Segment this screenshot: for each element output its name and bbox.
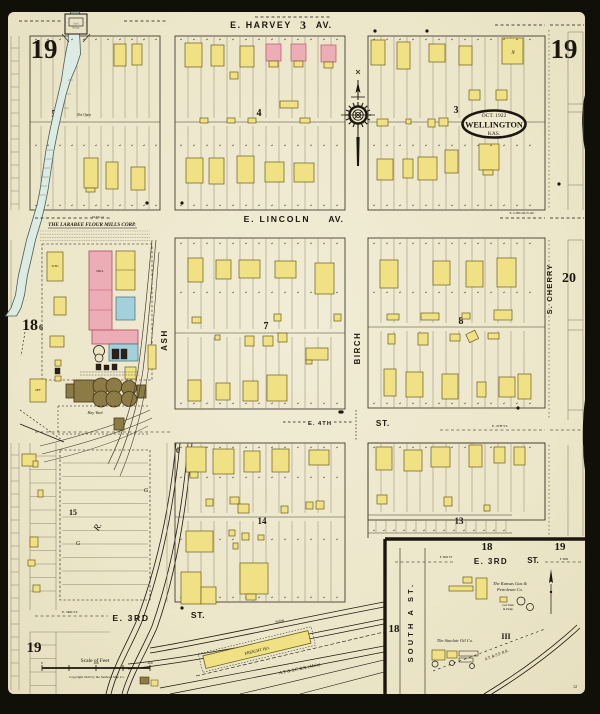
svg-text:E 3RD ST: E 3RD ST	[440, 555, 453, 559]
svg-text:20: 20	[562, 271, 576, 286]
svg-text:AV.: AV.	[316, 20, 332, 30]
svg-text:E. 4TH ST.: E. 4TH ST.	[492, 424, 508, 428]
svg-text:E. HARVEY: E. HARVEY	[230, 20, 292, 30]
svg-text:6: 6	[39, 323, 43, 332]
svg-text:The Sinclair Oil Co.: The Sinclair Oil Co.	[437, 638, 474, 643]
svg-text:19: 19	[27, 640, 42, 656]
svg-text:Not Open: Not Open	[76, 113, 91, 117]
svg-text:18: 18	[22, 317, 38, 334]
svg-text:KAS.: KAS.	[488, 131, 500, 137]
svg-text:7: 7	[264, 321, 269, 332]
svg-text:SOUTH A ST.: SOUTH A ST.	[406, 582, 415, 663]
svg-text:S. CHERRY: S. CHERRY	[545, 264, 554, 315]
svg-text:12: 12	[573, 684, 577, 689]
svg-text:Bridge: Bridge	[72, 26, 80, 29]
svg-text:19: 19	[551, 34, 578, 64]
svg-text:E. 3RD: E. 3RD	[112, 613, 149, 623]
svg-text:100: 100	[93, 661, 99, 665]
svg-text:ST.: ST.	[376, 419, 390, 428]
svg-text:E. 3RD: E. 3RD	[474, 557, 508, 566]
svg-text:The Kansas Gas &: The Kansas Gas &	[493, 581, 528, 586]
svg-text:OFF: OFF	[35, 388, 41, 392]
svg-text:III: III	[501, 632, 510, 641]
svg-text:14: 14	[258, 516, 268, 526]
svg-text:E. 3RD ST.: E. 3RD ST.	[62, 610, 78, 614]
svg-text:BIRCH: BIRCH	[353, 332, 362, 365]
svg-text:ELEV. U: ELEV. U	[92, 215, 104, 219]
svg-text:0: 0	[41, 661, 43, 665]
svg-text:N: N	[510, 51, 515, 56]
svg-text:& Pump: & Pump	[503, 607, 514, 611]
svg-text:E. 4TH: E. 4TH	[308, 421, 332, 427]
svg-text:3: 3	[300, 18, 306, 32]
svg-text:15: 15	[69, 508, 77, 517]
svg-text:4: 4	[257, 108, 262, 119]
svg-text:OCT. 1922: OCT. 1922	[482, 113, 507, 119]
svg-text:MILL: MILL	[96, 269, 103, 273]
svg-text:E. LINCOLN: E. LINCOLN	[244, 214, 311, 224]
svg-text:18: 18	[389, 623, 401, 635]
svg-text:ST.: ST.	[191, 610, 205, 620]
svg-text:ST.: ST.	[527, 556, 539, 565]
svg-text:0: 0	[176, 446, 180, 455]
svg-text:Copyright 1922 by the Sanborn: Copyright 1922 by the Sanborn Map Co.	[69, 675, 125, 679]
svg-text:W.Ho: W.Ho	[52, 264, 59, 268]
svg-text:E 3RD: E 3RD	[560, 557, 569, 561]
svg-text:ASH: ASH	[160, 329, 169, 351]
svg-text:Steel: Steel	[73, 23, 78, 26]
svg-text:WELLINGTON: WELLINGTON	[465, 121, 523, 130]
svg-text:G: G	[144, 488, 149, 494]
svg-text:3: 3	[454, 105, 459, 116]
svg-text:200: 200	[147, 661, 153, 665]
svg-text:19: 19	[31, 34, 58, 64]
svg-text:G: G	[76, 541, 81, 547]
svg-text:Hay Yard: Hay Yard	[87, 410, 104, 415]
svg-text:Petroleum Co.: Petroleum Co.	[496, 587, 523, 592]
svg-text:19: 19	[555, 541, 567, 553]
svg-text:E. LINCOLN AV.: E. LINCOLN AV.	[510, 211, 535, 215]
svg-text:18: 18	[482, 541, 494, 553]
svg-text:THE LARABEE FLOUR MILLS CORP.: THE LARABEE FLOUR MILLS CORP.	[48, 222, 136, 228]
svg-text:AV.: AV.	[328, 214, 343, 224]
